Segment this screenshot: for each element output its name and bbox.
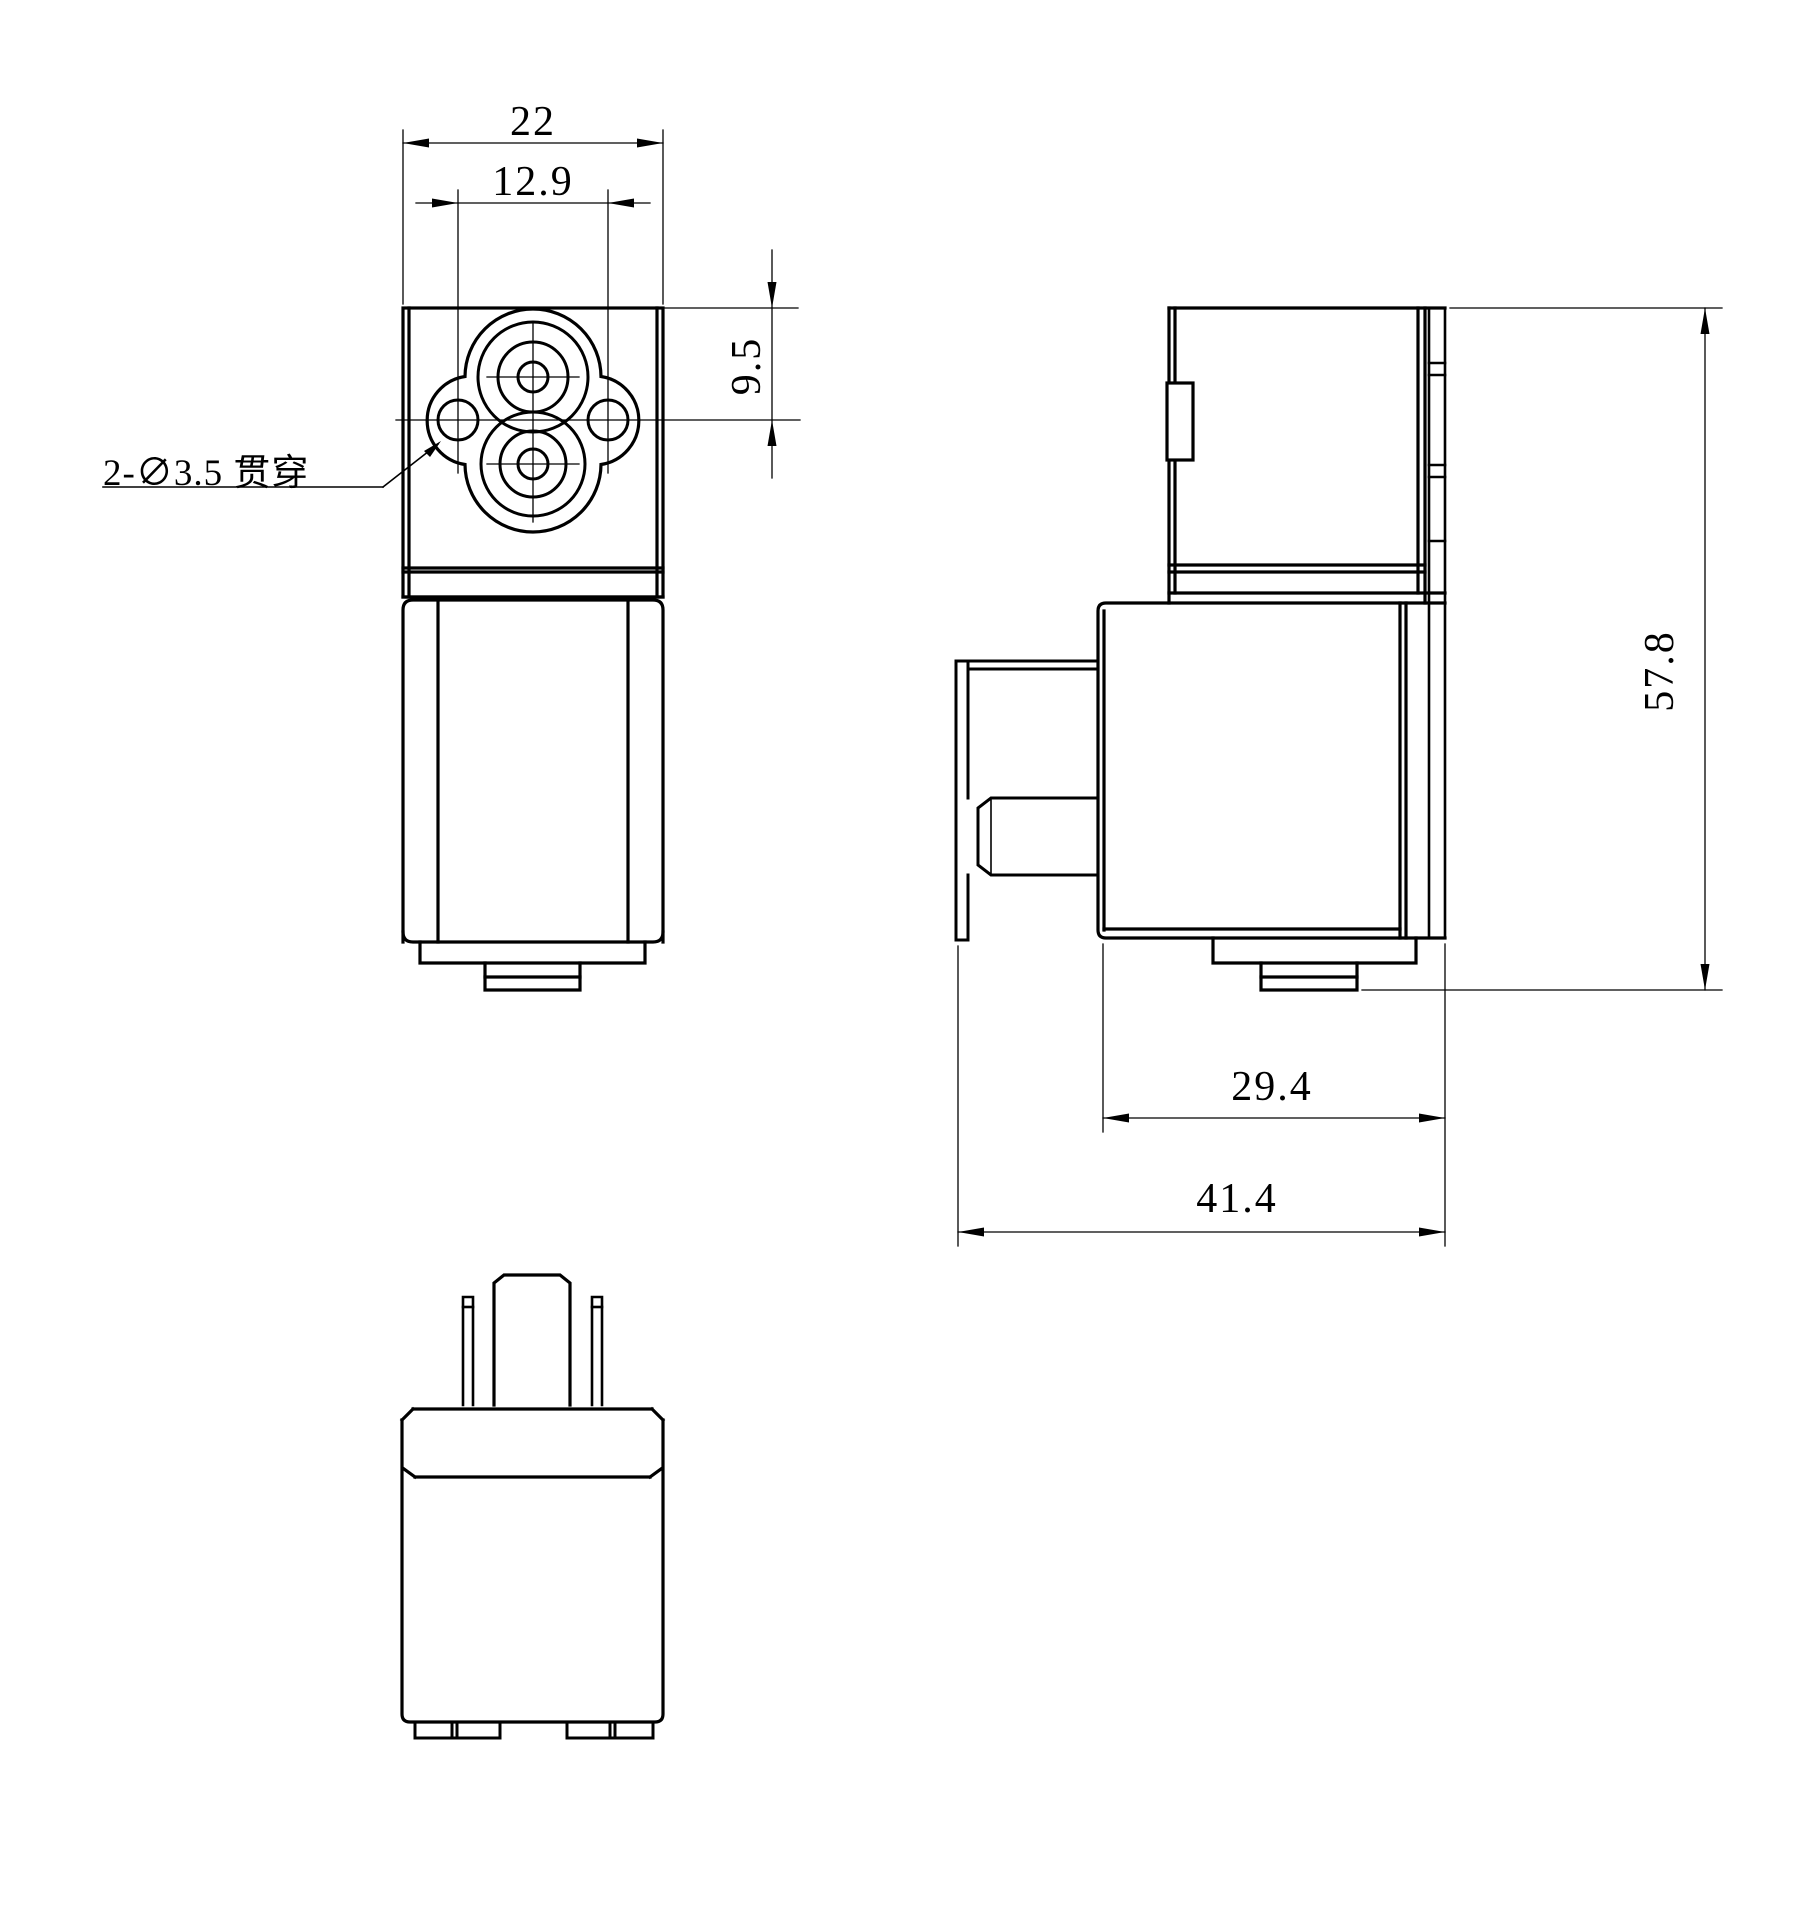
dim-text-top-to-hole-center: 9.5 <box>723 337 771 396</box>
motor-body-front <box>403 597 663 942</box>
body-bottom-view <box>402 1409 663 1722</box>
dim-text-hole-spacing: 12.9 <box>492 158 574 206</box>
drawing-linework <box>0 0 1815 1920</box>
rear-plate <box>956 661 1098 940</box>
drawing-canvas: 22 12.9 9.5 57.8 29.4 41.4 2-∅3.5 贯穿 <box>0 0 1815 1920</box>
bottom-feet <box>415 1722 653 1738</box>
front-plate-strip <box>1429 308 1445 938</box>
bottom-view <box>402 1275 663 1738</box>
motor-can-side <box>1167 308 1445 603</box>
label-through-holes: 2-∅3.5 贯穿 <box>103 442 309 496</box>
dim-text-housing-depth: 29.4 <box>1231 1063 1313 1111</box>
dim-text-height-overall: 57.8 <box>1636 630 1684 712</box>
dim-text-width-overall: 22 <box>510 98 556 146</box>
output-shaft-side <box>978 798 1098 875</box>
bottom-steps-front <box>420 942 645 990</box>
front-view <box>103 130 800 990</box>
side-view <box>956 308 1722 1246</box>
dim-22 <box>403 130 663 304</box>
terminal-pins <box>463 1297 602 1405</box>
bottom-steps-side <box>1213 938 1416 990</box>
dim-text-depth-overall: 41.4 <box>1196 1175 1278 1223</box>
gear-housing-side <box>1098 603 1445 938</box>
output-shaft-bottom <box>494 1275 570 1405</box>
